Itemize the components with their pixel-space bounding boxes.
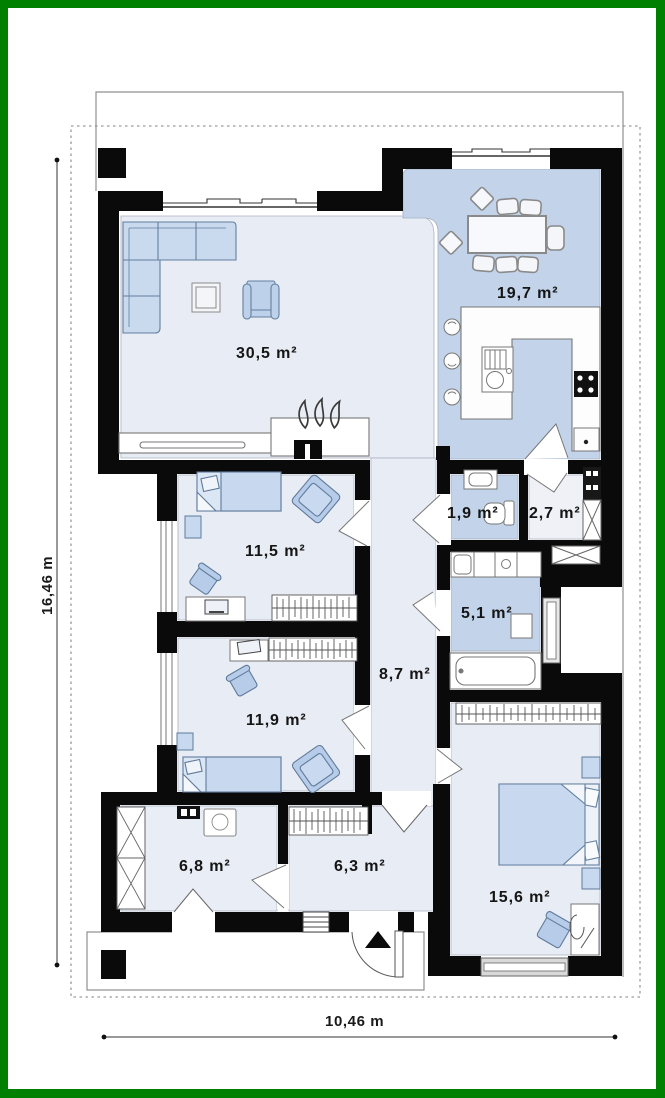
svg-text:5,1 m²: 5,1 m²: [461, 605, 513, 622]
svg-text:1,9 m²: 1,9 m²: [447, 505, 499, 522]
svg-text:10,46 m: 10,46 m: [325, 1013, 384, 1030]
svg-text:6,3 m²: 6,3 m²: [334, 858, 386, 875]
svg-text:30,5 m²: 30,5 m²: [236, 345, 297, 362]
svg-text:11,5 m²: 11,5 m²: [245, 543, 306, 560]
svg-text:2,7 m²: 2,7 m²: [529, 505, 581, 522]
svg-text:11,9 m²: 11,9 m²: [246, 712, 307, 729]
svg-text:16,46 m: 16,46 m: [39, 556, 56, 615]
svg-text:8,7 m²: 8,7 m²: [379, 666, 431, 683]
svg-text:19,7 m²: 19,7 m²: [497, 285, 558, 302]
svg-text:6,8 m²: 6,8 m²: [179, 858, 231, 875]
svg-text:15,6 m²: 15,6 m²: [489, 889, 550, 906]
